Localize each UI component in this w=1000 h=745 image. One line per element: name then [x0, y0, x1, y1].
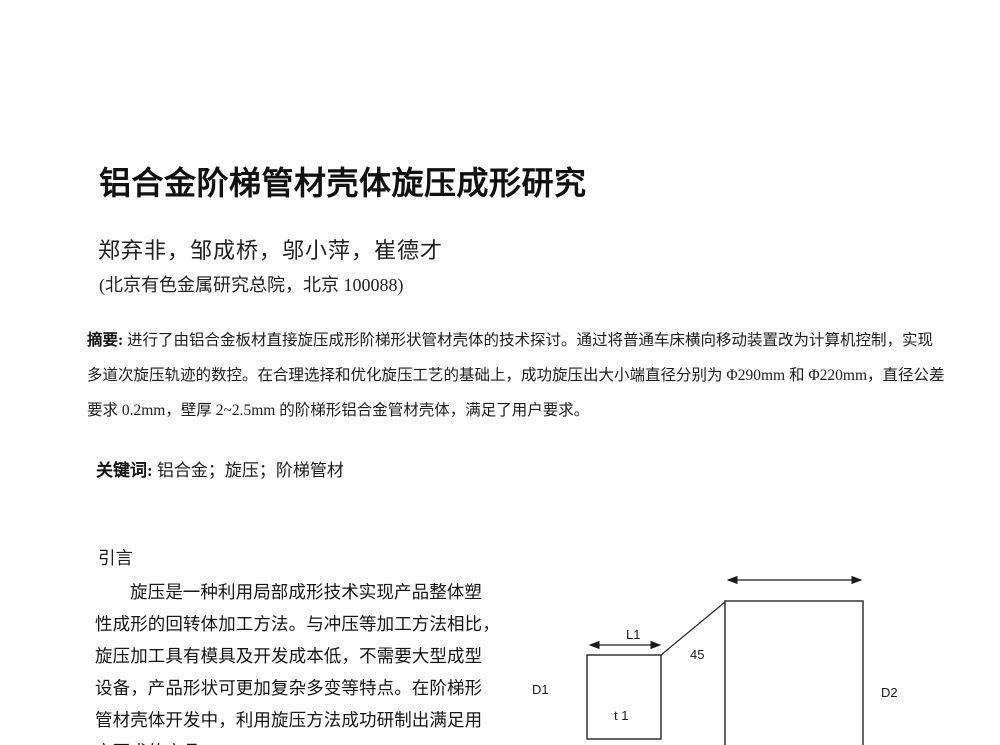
abstract-label: 摘要: [87, 332, 123, 349]
l1-label: L1 [626, 627, 640, 642]
abstract-block: 摘要: 进行了由铝合金板材直接旋压成形阶梯形状管材壳体的技术探讨。通过将普通车床… [87, 324, 967, 428]
keywords-block: 关键词: 铝合金；旋压；阶梯管材 [96, 456, 344, 481]
scanned-paper-page: 铝合金阶梯管材壳体旋压成形研究 郑弃非，邹成桥，邬小萍，崔德才 (北京有色金属研… [0, 0, 1000, 745]
abstract-line: 摘要: 进行了由铝合金板材直接旋压成形阶梯形状管材壳体的技术探讨。通过将普通车床… [87, 324, 967, 359]
small-diameter-rect [587, 655, 661, 739]
intro-line: 旋压加工具有模具及开发成本低，不需要大型成型 [95, 640, 495, 672]
intro-line: 管材壳体开发中，利用旋压方法成功研制出满足用 [95, 704, 495, 736]
d2-label: D2 [881, 685, 898, 700]
stepped-tube-figure-svg: D1 L1 45 t 1 D2 [500, 560, 1000, 745]
t1-label: t 1 [614, 708, 628, 723]
d1-label: D1 [532, 682, 549, 697]
intro-line: 设备，产品形状可更加复杂多变等特点。在阶梯形 [95, 672, 495, 704]
intro-line: 旋压是一种利用局部成形技术实现产品整体塑 [95, 576, 495, 608]
paper-title: 铝合金阶梯管材壳体旋压成形研究 [99, 158, 587, 204]
intro-line: 性成形的回转体加工方法。与冲压等加工方法相比， [95, 608, 495, 640]
section-heading-introduction: 引言 [98, 545, 133, 570]
large-diameter-rect [725, 601, 863, 745]
affiliation: (北京有色金属研究总院，北京 100088) [99, 271, 404, 297]
introduction-paragraph: 旋压是一种利用局部成形技术实现产品整体塑 性成形的回转体加工方法。与冲压等加工方… [95, 576, 495, 745]
taper-angle-label: 45 [690, 647, 704, 662]
keywords-label: 关键词: [96, 461, 153, 480]
keywords-text: 铝合金；旋压；阶梯管材 [157, 461, 344, 480]
stepped-tube-diagram: D1 L1 45 t 1 D2 [500, 560, 1000, 745]
intro-line: 户要求的产品 [95, 736, 495, 745]
abstract-line: 要求 0.2mm，壁厚 2~2.5mm 的阶梯形铝合金管材壳体，满足了用户要求。 [87, 394, 967, 429]
author-list: 郑弃非，邹成桥，邬小萍，崔德才 [98, 233, 443, 265]
abstract-line: 多道次旋压轨迹的数控。在合理选择和优化旋压工艺的基础上，成功旋压出大小端直径分别… [87, 359, 967, 394]
abstract-text: 进行了由铝合金板材直接旋压成形阶梯形状管材壳体的技术探讨。通过将普通车床横向移动… [127, 332, 933, 349]
